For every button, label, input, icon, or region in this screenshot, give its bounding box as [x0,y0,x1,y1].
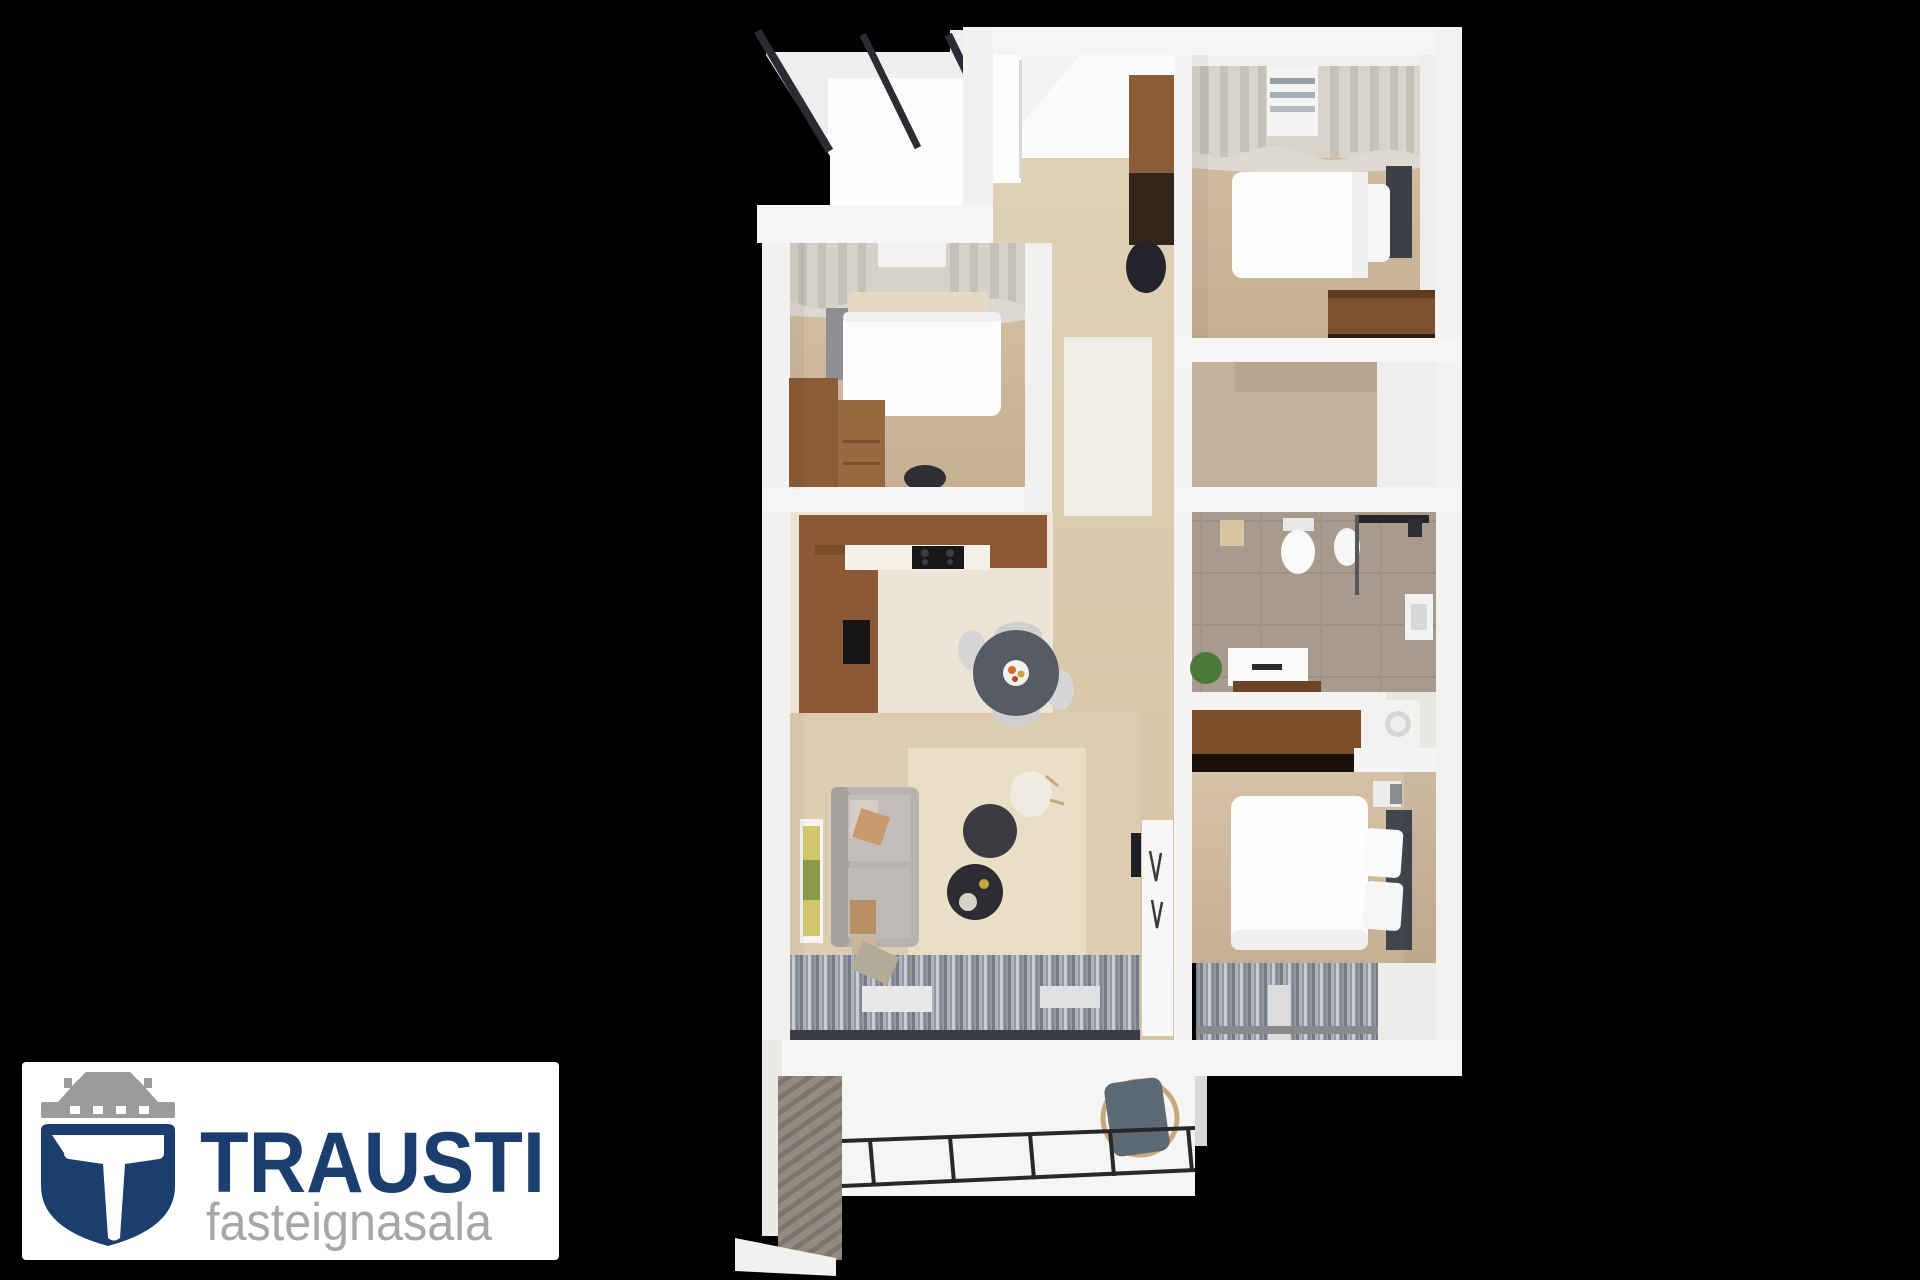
svg-text:fasteignasala: fasteignasala [206,1193,492,1252]
